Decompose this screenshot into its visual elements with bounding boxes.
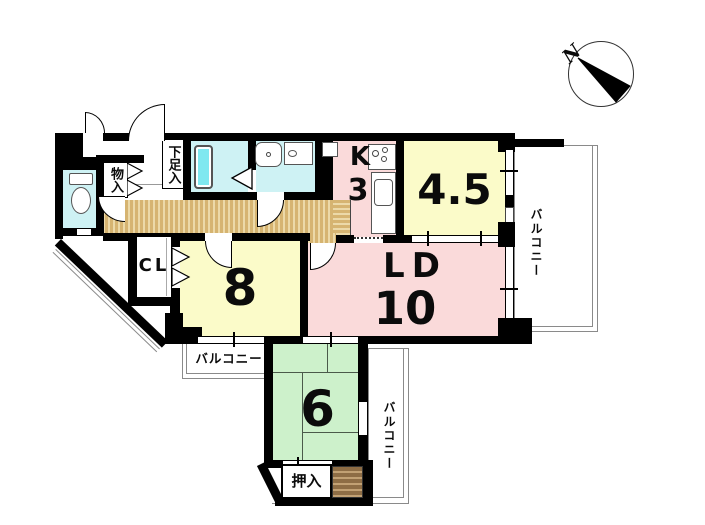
- ld-east-window: [505, 247, 514, 322]
- room45-label: 4.5: [404, 155, 505, 225]
- bathroom-folding-door-icon: [230, 165, 255, 191]
- wall-segment: [505, 139, 564, 147]
- toilet-window: [76, 228, 92, 236]
- window-tick: [500, 288, 518, 290]
- hallway-floor: [103, 200, 333, 233]
- wall-segment: [505, 195, 514, 207]
- wall-segment: [498, 222, 515, 247]
- wall-segment: [55, 133, 63, 239]
- wall-segment: [55, 133, 83, 141]
- wall-segment: [165, 313, 183, 344]
- window-tick: [233, 332, 235, 347]
- washbasin-drain: [266, 152, 271, 157]
- wall-segment: [183, 141, 191, 200]
- bathtub: [194, 145, 213, 189]
- wall-segment: [396, 141, 404, 243]
- kitchen-type-label: K: [345, 143, 375, 170]
- wall-segment: [336, 235, 354, 243]
- washing-machine-drain: [288, 150, 297, 157]
- closet-folding-door-icon: [172, 247, 191, 288]
- room8-label: 8: [200, 250, 280, 325]
- wall-segment: [383, 235, 412, 243]
- toilet-bowl: [71, 187, 91, 214]
- wall-segment: [63, 163, 96, 170]
- living-dining-size-label: 10: [345, 283, 465, 333]
- window-tick: [330, 332, 332, 347]
- hallway-floor-ld-stub: [308, 233, 336, 243]
- toilet-tank: [69, 173, 93, 185]
- stove-burner: [382, 147, 388, 153]
- floorplan-canvas: N 4.5 K 3 LD 10 8 6 CL 下足入 物入 押入 バルコニー バ…: [0, 0, 705, 525]
- tatami-line: [327, 344, 328, 372]
- wall-segment: [358, 336, 505, 344]
- porch-door-arc: [85, 112, 105, 133]
- wall-segment: [363, 460, 373, 506]
- futon-closet-label: 押入: [283, 470, 330, 493]
- kitchen-sink: [374, 179, 393, 206]
- pipe-space-box: [322, 142, 338, 157]
- room6-label: 6: [280, 370, 355, 448]
- room45-ld-sliding-door: [412, 235, 498, 243]
- closet-label: CL: [137, 252, 171, 280]
- window-tick: [480, 231, 482, 246]
- room6-east-window: [358, 402, 368, 435]
- kitchen-ld-dotted-boundary: [354, 237, 383, 239]
- balcony-south-label: バルコニー: [377, 388, 401, 484]
- wall-segment: [300, 241, 308, 336]
- wall-segment: [63, 228, 76, 236]
- shoe-closet-label: 下足入: [163, 141, 183, 187]
- wood-step-board: [332, 466, 363, 498]
- storage-folding-door-icon: [127, 162, 144, 198]
- wall-segment: [264, 336, 303, 344]
- entrance-door-arc: [128, 104, 165, 141]
- storage-label: 物入: [105, 164, 126, 196]
- wall-segment: [128, 233, 136, 306]
- wall-segment: [191, 192, 257, 200]
- balcony-east-label: バルコニー: [524, 195, 548, 291]
- stove-burner: [381, 156, 387, 162]
- window-tick: [427, 231, 429, 246]
- wall-segment: [232, 233, 310, 241]
- room45-east-window: [505, 150, 514, 198]
- wall-segment: [172, 233, 180, 247]
- balcony-southwest-label: バルコニー: [190, 351, 268, 367]
- kitchen-size-label: 3: [342, 174, 374, 208]
- living-dining-type-label: LD: [355, 247, 475, 285]
- wall-segment: [165, 133, 506, 141]
